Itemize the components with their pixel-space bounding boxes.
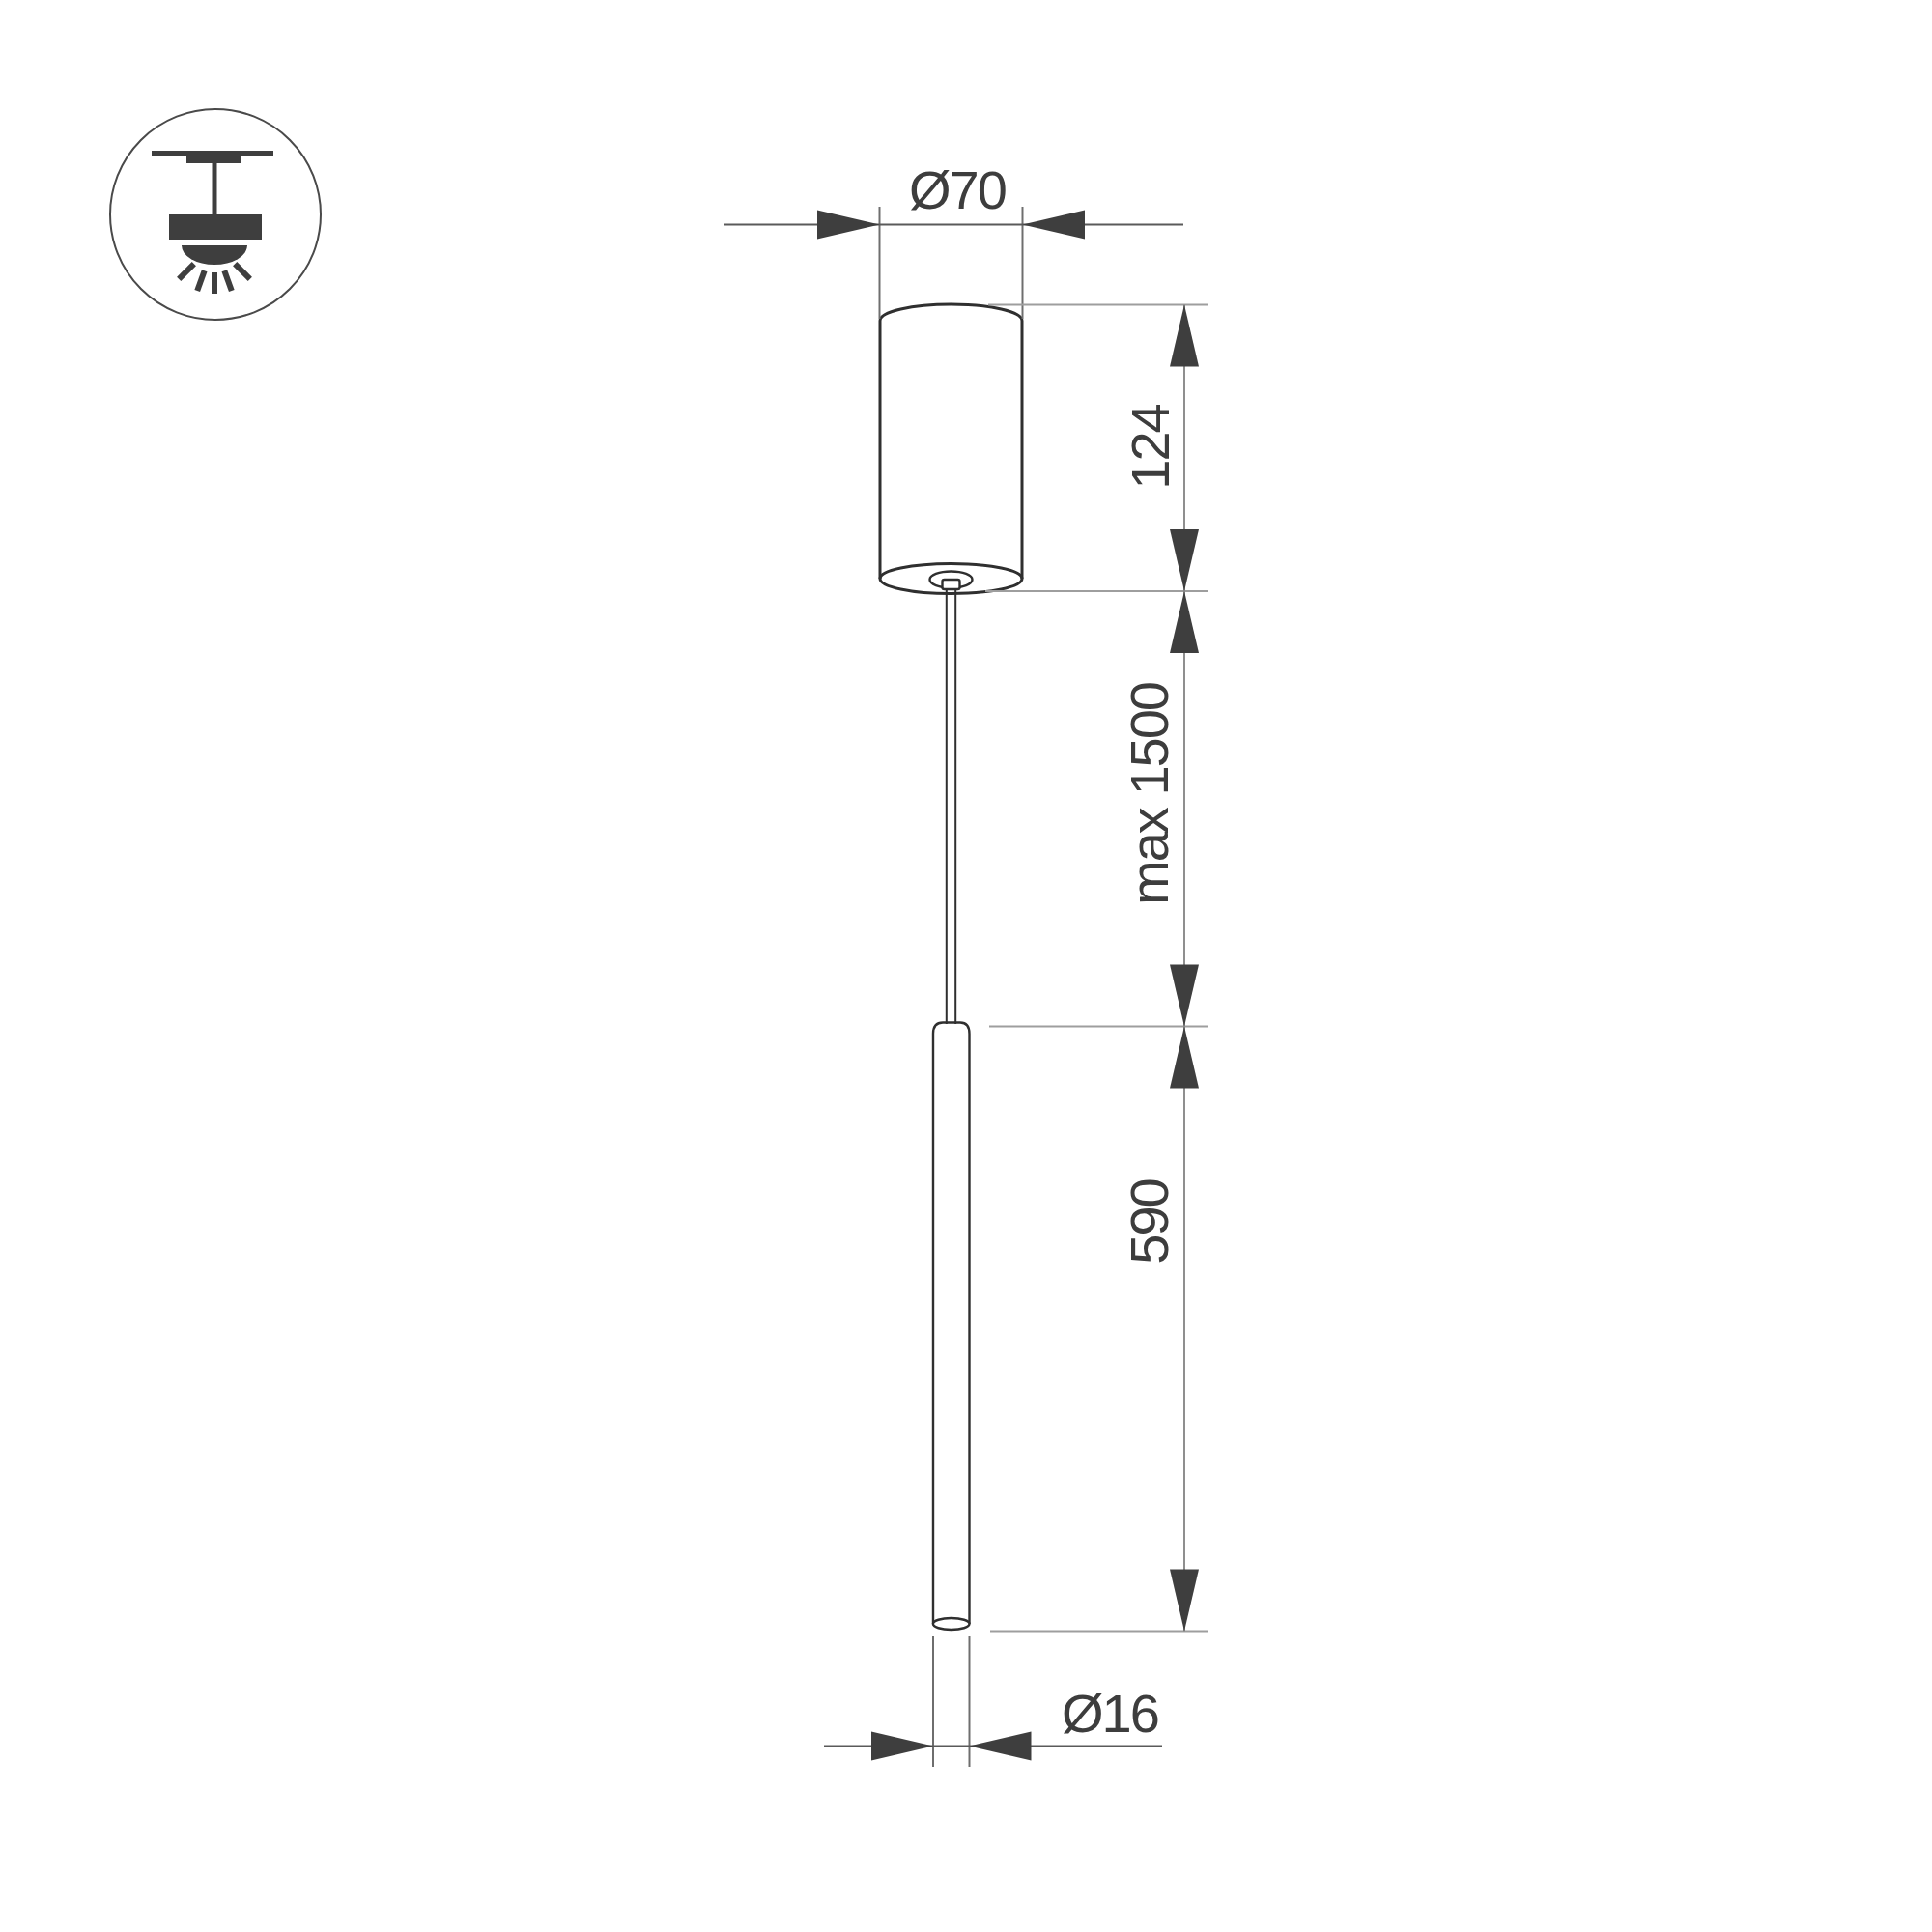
dim-tube-diameter: Ø16 xyxy=(824,1636,1162,1767)
arrow-up-icon xyxy=(1170,305,1199,367)
canopy-drawing xyxy=(880,304,1022,594)
arrow-up-icon xyxy=(1170,591,1199,653)
dim-label-suspension-max: max 1500 xyxy=(1119,683,1179,905)
tube-lamp-drawing xyxy=(933,1023,970,1631)
suspension-wire xyxy=(947,589,955,1024)
canopy-top-arc xyxy=(880,304,1022,321)
tube-body xyxy=(933,1023,970,1625)
vertical-dimension-chain: 124 max 1500 590 xyxy=(985,305,1208,1632)
tube-bottom-cap xyxy=(933,1618,970,1630)
arrow-up-icon xyxy=(1170,1027,1199,1089)
dim-label-canopy-height: 124 xyxy=(1120,404,1180,489)
technical-drawing: Ø70 124 max 1500 590 Ø16 xyxy=(0,0,1932,1932)
icon-rod xyxy=(213,163,217,217)
canopy-wire-collar xyxy=(943,580,960,589)
arrow-down-icon xyxy=(1170,529,1199,591)
icon-canopy xyxy=(186,156,241,163)
arrow-right-icon xyxy=(1023,211,1086,240)
arrow-left-icon xyxy=(817,211,880,240)
arrow-right-icon xyxy=(970,1732,1032,1761)
dim-canopy-diameter: Ø70 xyxy=(724,159,1183,319)
ceiling-mount-pendant-icon xyxy=(110,109,321,320)
arrow-down-icon xyxy=(1170,1570,1199,1632)
icon-lamp-body xyxy=(169,214,262,240)
dim-label-canopy-diameter: Ø70 xyxy=(909,159,1006,220)
dim-label-tube-diameter: Ø16 xyxy=(1062,1683,1158,1744)
dim-label-tube-length: 590 xyxy=(1119,1179,1179,1264)
arrow-left-icon xyxy=(871,1732,933,1761)
arrow-down-icon xyxy=(1170,965,1199,1027)
icon-ceiling-line xyxy=(152,151,273,156)
